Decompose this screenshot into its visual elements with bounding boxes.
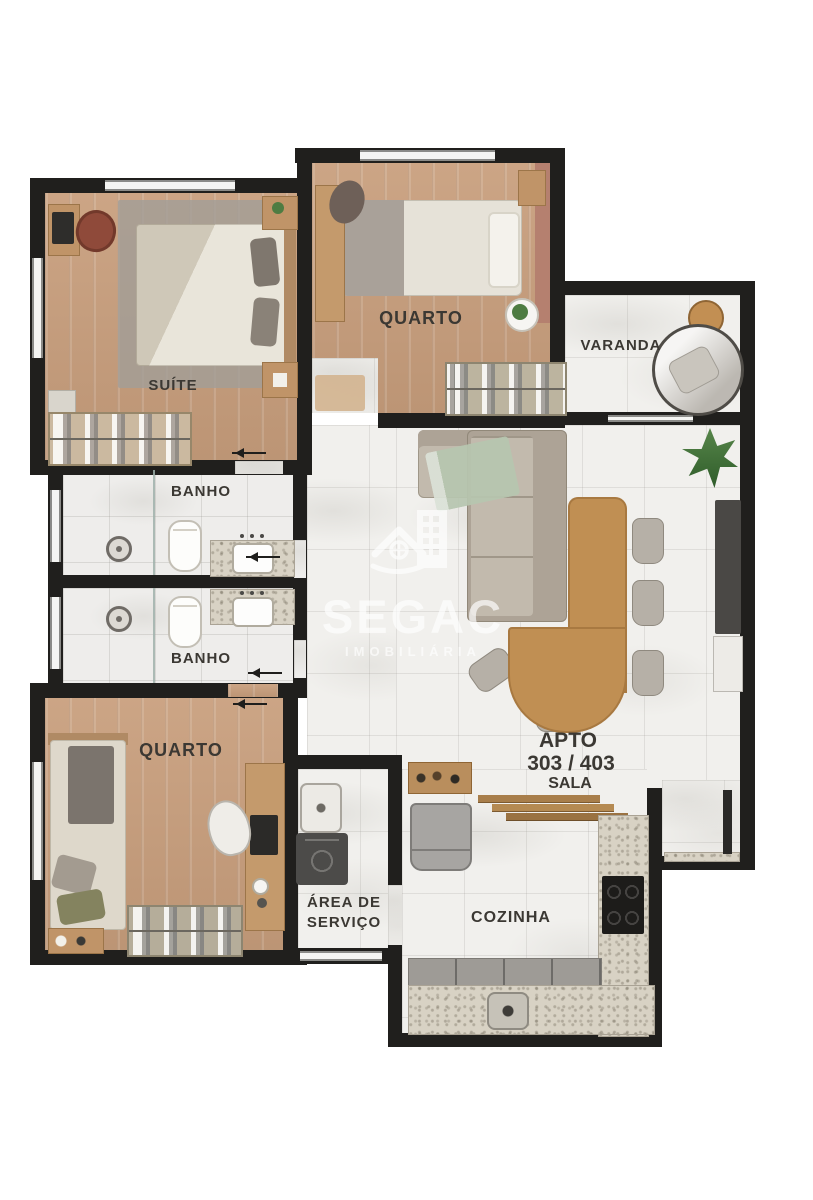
banho-upper-door-opening: [294, 540, 306, 578]
quarto-top-nightstand: [518, 170, 546, 206]
quarto-bottom-wardrobe: [127, 905, 243, 957]
entry-door: [723, 790, 732, 854]
label-cozinha: COZINHA: [471, 909, 551, 927]
bed-pillow: [488, 212, 520, 288]
toilet-icon: [168, 520, 202, 572]
label-area-servico: ÁREA DE SERVIÇO: [294, 893, 394, 932]
unit-label-number: 303 / 403: [527, 752, 615, 776]
suite-pillow: [250, 237, 281, 287]
dining-chair: [632, 650, 664, 696]
fridge: [410, 803, 472, 871]
label-banho-lower: BANHO: [171, 650, 231, 667]
monitor-icon: [250, 815, 278, 855]
servico-window: [300, 951, 382, 961]
suite-pillow: [250, 297, 280, 347]
bar-shelf: [492, 804, 614, 812]
kitchen-sink: [487, 992, 529, 1030]
hall-floor: [307, 425, 396, 769]
servico-cozinha-wall: [388, 755, 402, 885]
floorplan-canvas: SUÍTE QUARTO VARANDA BANHO BANHO QUARTO …: [0, 0, 813, 1200]
suite-nightstand: [262, 362, 298, 398]
label-banho-upper: BANHO: [171, 483, 231, 500]
faucet-icon: [240, 591, 244, 595]
suite-wardrobe: [48, 412, 192, 466]
label-suite: SUÍTE: [148, 377, 197, 394]
bed-throw-blanket: [68, 746, 114, 824]
dining-chair: [632, 518, 664, 564]
washing-machine: [296, 833, 348, 885]
banho-lower-door-arrow-icon: [248, 672, 282, 674]
suite-window: [105, 180, 235, 191]
faucet-icon: [240, 534, 244, 538]
servico-top-wall: [283, 755, 396, 769]
plant-icon: [512, 304, 528, 320]
label-quarto-top: QUARTO: [379, 308, 463, 329]
banho-lower-door-opening: [294, 640, 306, 678]
suite-side-window: [32, 258, 43, 358]
banho-upper-door-arrow-icon: [246, 556, 280, 558]
shower-head-icon: [106, 536, 132, 562]
cozinha-left-wall: [388, 945, 402, 1047]
banho-upper-window: [50, 490, 61, 562]
desk-item: [257, 898, 267, 908]
varanda-sliding-door: [608, 415, 693, 422]
label-varanda: VARANDA: [581, 337, 662, 354]
sink-basin: [232, 597, 274, 627]
dining-chair: [632, 580, 664, 626]
unit-label-apto: APTO: [539, 729, 597, 753]
plant-icon: [272, 202, 284, 214]
bar-shelf: [478, 795, 600, 803]
varanda-top-wall: [552, 281, 755, 295]
sideboard: [715, 500, 741, 634]
laptop-icon: [52, 212, 74, 244]
quarto-bottom-door-opening: [228, 684, 278, 697]
label-quarto-bottom: QUARTO: [139, 740, 223, 761]
quarto-top-window: [360, 150, 495, 161]
shower-head-icon: [106, 606, 132, 632]
quarto-top-wardrobe: [445, 362, 567, 416]
cozinha-counter-bottom: [408, 985, 655, 1035]
entry-mat: [315, 375, 365, 411]
label-sala: SALA: [548, 775, 592, 793]
banho-lower-window: [50, 597, 61, 669]
bar-counter-bottles: [408, 762, 472, 794]
white-cabinet: [713, 636, 743, 692]
toilet-icon: [168, 596, 202, 648]
suite-door-arrow-icon: [232, 452, 266, 454]
shower-glass-partition: [153, 470, 155, 575]
shower-glass-partition: [153, 588, 155, 683]
suite-right-wall: [297, 148, 312, 470]
desk-item: [252, 878, 269, 895]
quarto-bottom-window: [32, 762, 43, 880]
quarto-bottom-shelf: [48, 928, 104, 954]
suite-headboard: [284, 218, 296, 370]
laundry-tank: [300, 783, 342, 833]
quarto-bottom-door-arrow-icon: [233, 703, 267, 705]
suite-door-opening: [235, 461, 283, 474]
cooktop: [602, 876, 644, 934]
